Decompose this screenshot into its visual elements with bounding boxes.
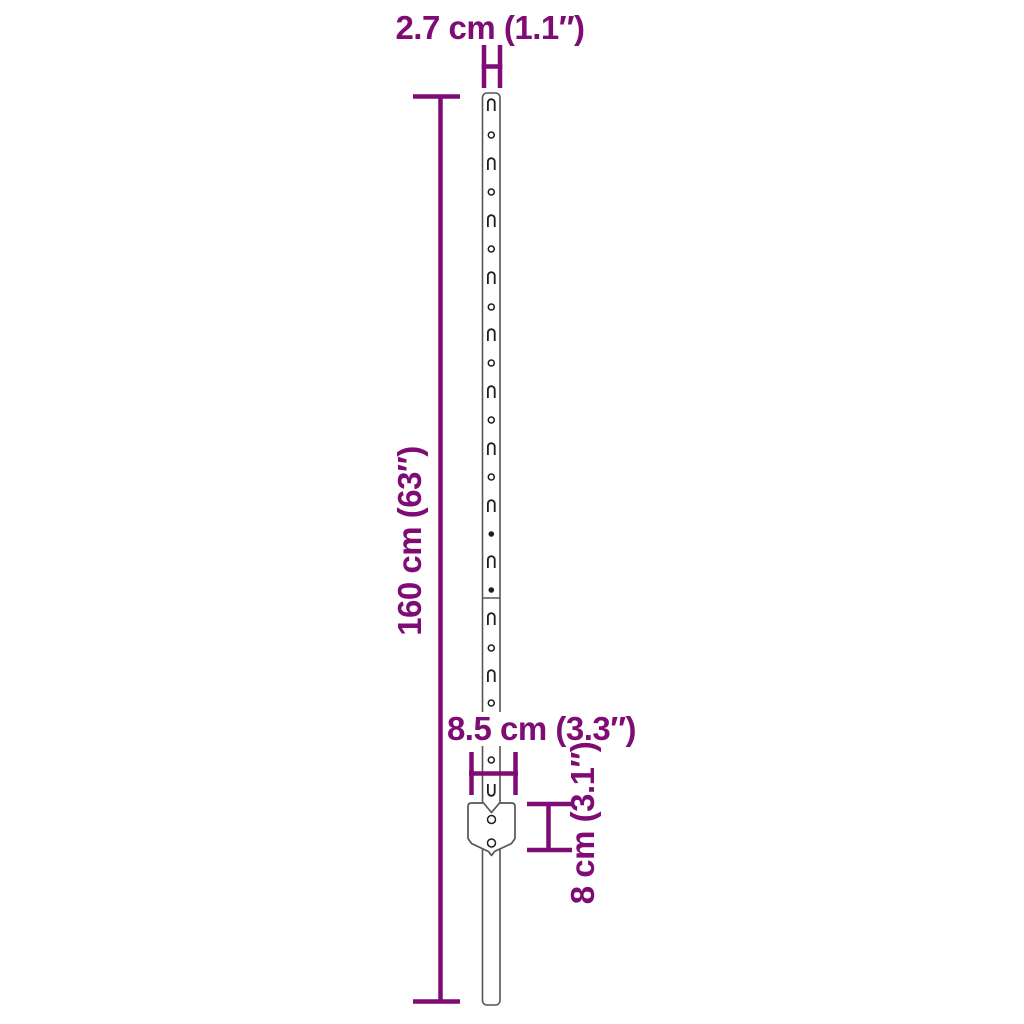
- post-hole: [488, 474, 494, 480]
- post-rail: [483, 93, 501, 1005]
- diagram-canvas: 2.7 cm (1.1″) 160 cm (63″) 8.5 cm (3.3″)…: [0, 0, 1024, 1024]
- top-width-label: 2.7 cm (1.1″): [395, 9, 584, 46]
- post-hole: [488, 246, 494, 252]
- post-dimension-diagram: 2.7 cm (1.1″) 160 cm (63″) 8.5 cm (3.3″)…: [0, 0, 1024, 1024]
- post-hole: [488, 645, 494, 651]
- top-width-dimension: [482, 45, 503, 88]
- plate-hole-bottom: [488, 839, 496, 847]
- post-hole: [488, 360, 494, 366]
- plate-height-label: 8 cm (3.1″): [564, 742, 601, 905]
- post-stud: [489, 587, 495, 593]
- plate-width-label: 8.5 cm (3.3″): [447, 710, 636, 747]
- post-hole: [488, 132, 494, 138]
- post-hole: [488, 304, 494, 310]
- post-hole: [488, 700, 494, 706]
- height-label: 160 cm (63″): [391, 446, 428, 636]
- plate-hole-top: [488, 816, 496, 824]
- post-hole: [488, 757, 494, 763]
- post-stud: [489, 531, 495, 537]
- post-hole: [488, 189, 494, 195]
- post-body: [483, 93, 501, 1005]
- post-hole: [488, 417, 494, 423]
